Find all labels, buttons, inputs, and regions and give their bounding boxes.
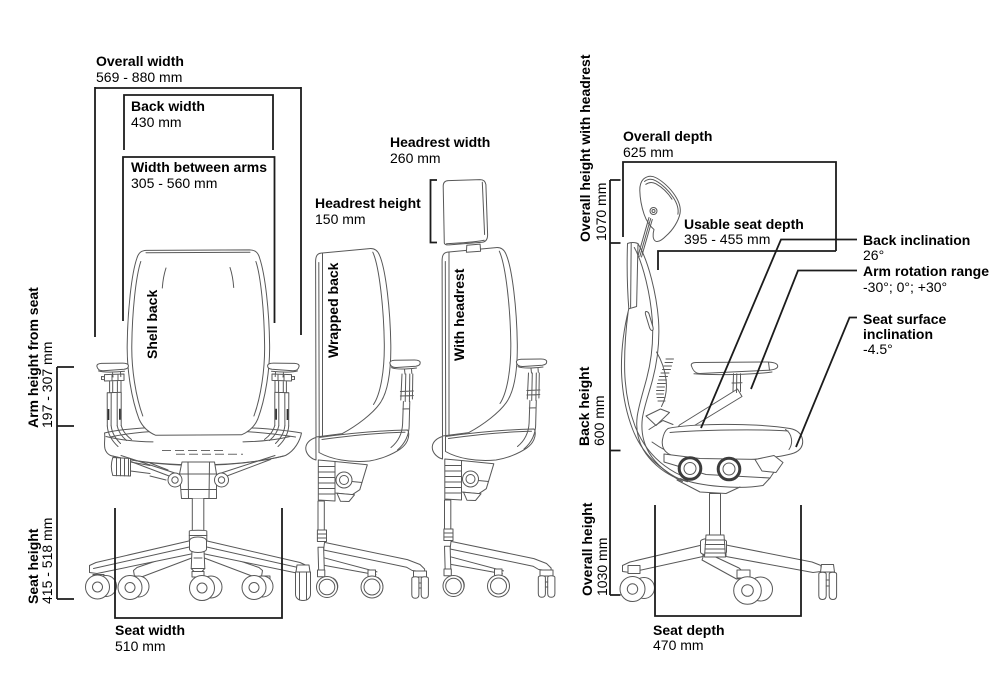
svg-text:Back inclination: Back inclination [863, 232, 970, 248]
svg-text:1030 mm: 1030 mm [594, 538, 610, 596]
svg-text:260 mm: 260 mm [390, 150, 441, 166]
svg-text:Seat depth: Seat depth [653, 622, 725, 638]
svg-text:-4.5°: -4.5° [863, 341, 893, 357]
svg-text:Width between arms: Width between arms [131, 159, 267, 175]
svg-text:Overall width: Overall width [96, 53, 184, 69]
svg-text:Seat surface: Seat surface [863, 311, 946, 327]
svg-text:Back height: Back height [576, 366, 592, 446]
svg-text:305 - 560 mm: 305 - 560 mm [131, 175, 217, 191]
svg-text:197 - 307 mm: 197 - 307 mm [39, 342, 55, 428]
svg-text:625 mm: 625 mm [623, 144, 674, 160]
svg-text:-30°; 0°; +30°: -30°; 0°; +30° [863, 279, 947, 295]
svg-text:Shell back: Shell back [144, 290, 160, 359]
svg-text:Overall height with headrest: Overall height with headrest [577, 54, 593, 242]
svg-text:510 mm: 510 mm [115, 638, 166, 654]
svg-text:Headrest height: Headrest height [315, 195, 421, 211]
svg-text:26°: 26° [863, 247, 884, 263]
svg-text:470 mm: 470 mm [653, 637, 704, 653]
svg-text:Wrapped back: Wrapped back [325, 262, 341, 358]
svg-text:Usable seat depth: Usable seat depth [684, 216, 804, 232]
svg-text:Seat width: Seat width [115, 622, 185, 638]
svg-text:430 mm: 430 mm [131, 114, 182, 130]
svg-text:415 - 518 mm: 415 - 518 mm [39, 518, 55, 604]
svg-text:Overall height: Overall height [579, 502, 595, 596]
svg-text:Back width: Back width [131, 98, 205, 114]
svg-text:Overall depth: Overall depth [623, 128, 712, 144]
svg-text:inclination: inclination [863, 326, 933, 342]
svg-text:1070 mm: 1070 mm [593, 183, 609, 241]
svg-text:Headrest width: Headrest width [390, 134, 490, 150]
svg-text:Arm rotation range: Arm rotation range [863, 263, 989, 279]
svg-text:150 mm: 150 mm [315, 211, 366, 227]
svg-text:569 - 880 mm: 569 - 880 mm [96, 69, 182, 85]
svg-text:With headrest: With headrest [451, 268, 467, 361]
svg-text:395 - 455 mm: 395 - 455 mm [684, 231, 770, 247]
svg-text:600 mm: 600 mm [591, 395, 607, 446]
